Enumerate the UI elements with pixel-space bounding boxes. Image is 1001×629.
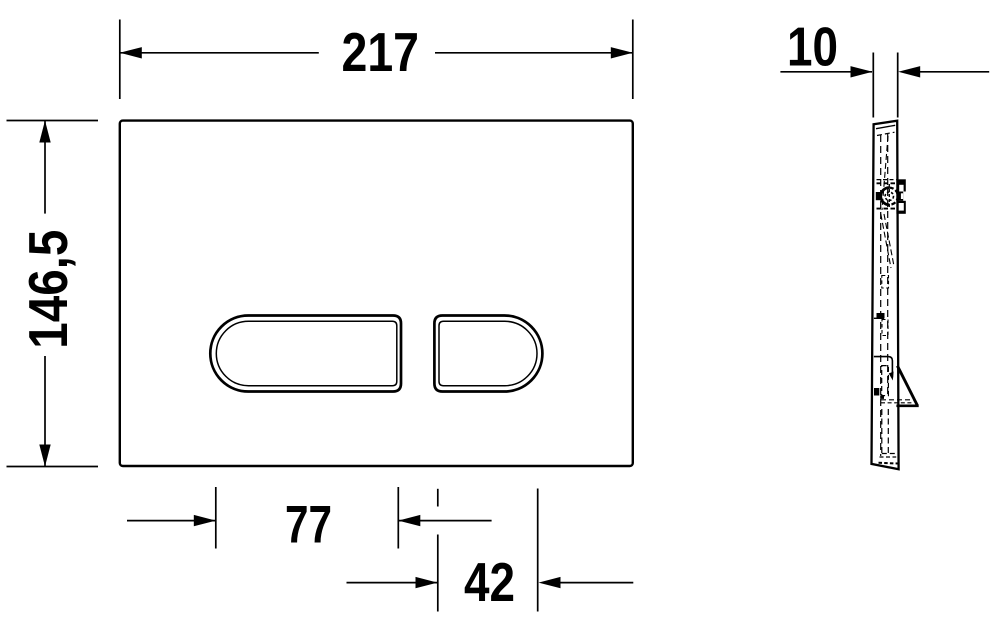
svg-text:217: 217	[342, 21, 420, 83]
svg-text:146,5: 146,5	[17, 230, 79, 349]
svg-text:42: 42	[464, 551, 515, 613]
svg-text:77: 77	[285, 496, 332, 555]
svg-text:10: 10	[787, 15, 838, 77]
